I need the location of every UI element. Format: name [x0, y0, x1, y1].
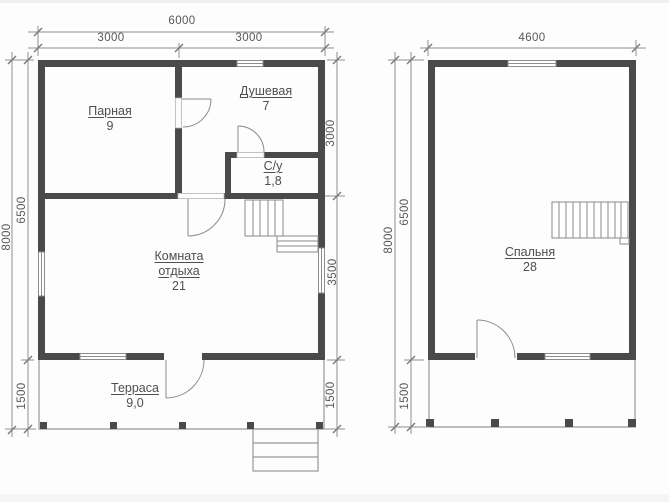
dim-floor2-width-total: 4600: [502, 31, 562, 45]
room-label-parnaya: Парная 9: [60, 104, 160, 134]
dim-floor1-width-left: 3000: [81, 31, 141, 45]
dim-floor1-height-total: 8000: [0, 215, 14, 259]
room-name-spalnya: Спальня: [505, 245, 555, 259]
room-area-parnaya: 9: [60, 119, 160, 134]
dim-floor1-height-terrace: 1500: [15, 374, 29, 418]
dim-floor1-right-top: 3000: [324, 111, 338, 155]
room-area-spalnya: 28: [480, 260, 580, 275]
dim-floor1-height-main: 6500: [15, 188, 29, 232]
room-name-dushevaya: Душевая: [240, 84, 292, 98]
floor1-terrace: [39, 360, 324, 471]
dim-floor1-width-total: 6000: [152, 14, 212, 28]
room-label-spalnya: Спальня 28: [480, 245, 580, 275]
floor2-door: [477, 320, 515, 358]
room-area-su: 1,8: [243, 174, 303, 189]
room-name-parnaya: Парная: [88, 104, 132, 118]
room-name-terrasa: Терраса: [111, 381, 159, 395]
room-area-dushevaya: 7: [216, 99, 316, 114]
floor2-balcony-posts: [426, 419, 636, 427]
dim-floor2-height-total: 8000: [382, 218, 396, 262]
room-name-su: С/у: [264, 159, 283, 173]
floor2-stairs: [552, 202, 629, 244]
floor2-balcony: [429, 360, 635, 427]
dim-floor2-height-terrace: 1500: [398, 374, 412, 418]
dim-floor1-width-right: 3000: [219, 31, 279, 45]
dim-floor1-right-mid: 3500: [326, 250, 340, 294]
room-label-dushevaya: Душевая 7: [216, 84, 316, 114]
dim-floor1-right-bottom: 1500: [324, 373, 338, 417]
floor1-stairs: [245, 200, 318, 252]
floorplan-canvas: 6000 3000 3000 8000 6500 1500 3000 3500 …: [0, 0, 669, 502]
room-label-su: С/у 1,8: [243, 159, 303, 189]
room-label-komnata: Комната отдыха 21: [143, 249, 215, 293]
floor1-terrace-posts: [40, 422, 323, 429]
room-label-terrasa: Терраса 9,0: [85, 381, 185, 411]
room-area-terrasa: 9,0: [85, 396, 185, 411]
room-area-komnata: 21: [143, 279, 215, 294]
room-name-komnata: Комната отдыха: [155, 249, 204, 278]
dim-floor2-height-main: 6500: [398, 190, 412, 234]
